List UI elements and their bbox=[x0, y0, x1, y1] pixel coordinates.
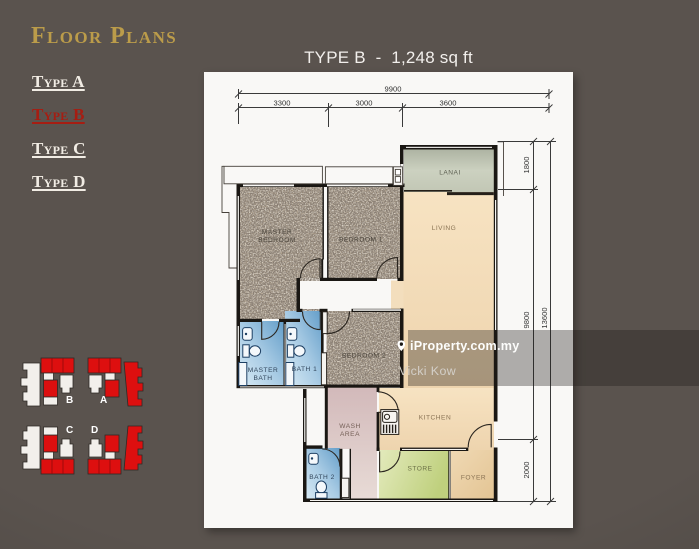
svg-text:BATH: BATH bbox=[253, 375, 272, 382]
svg-text:13600: 13600 bbox=[540, 307, 549, 328]
svg-text:B: B bbox=[66, 395, 73, 406]
svg-text:BEDROOM 1: BEDROOM 1 bbox=[339, 237, 383, 244]
svg-text:STORE: STORE bbox=[407, 466, 432, 473]
svg-text:BEDROOM: BEDROOM bbox=[258, 237, 296, 244]
svg-text:LANAI: LANAI bbox=[439, 170, 461, 177]
svg-text:3000: 3000 bbox=[356, 99, 373, 108]
svg-text:FOYER: FOYER bbox=[461, 475, 486, 482]
svg-text:A: A bbox=[100, 395, 107, 406]
svg-text:WASH: WASH bbox=[339, 423, 361, 430]
svg-text:MASTER: MASTER bbox=[262, 229, 292, 236]
svg-text:9900: 9900 bbox=[385, 85, 402, 94]
svg-text:C: C bbox=[66, 425, 73, 436]
svg-text:D: D bbox=[91, 425, 98, 436]
svg-text:9800: 9800 bbox=[522, 312, 531, 329]
svg-text:3300: 3300 bbox=[274, 99, 291, 108]
svg-text:KITCHEN: KITCHEN bbox=[419, 415, 451, 422]
svg-text:BATH 2: BATH 2 bbox=[309, 474, 335, 481]
svg-text:BATH 1: BATH 1 bbox=[292, 366, 318, 373]
svg-text:AREA: AREA bbox=[340, 431, 360, 438]
svg-text:3600: 3600 bbox=[440, 99, 457, 108]
svg-text:BEDROOM 2: BEDROOM 2 bbox=[342, 353, 386, 360]
svg-text:1800: 1800 bbox=[522, 157, 531, 174]
svg-text:LIVING: LIVING bbox=[432, 225, 457, 232]
svg-text:2000: 2000 bbox=[522, 462, 531, 479]
svg-text:MASTER: MASTER bbox=[248, 367, 278, 374]
